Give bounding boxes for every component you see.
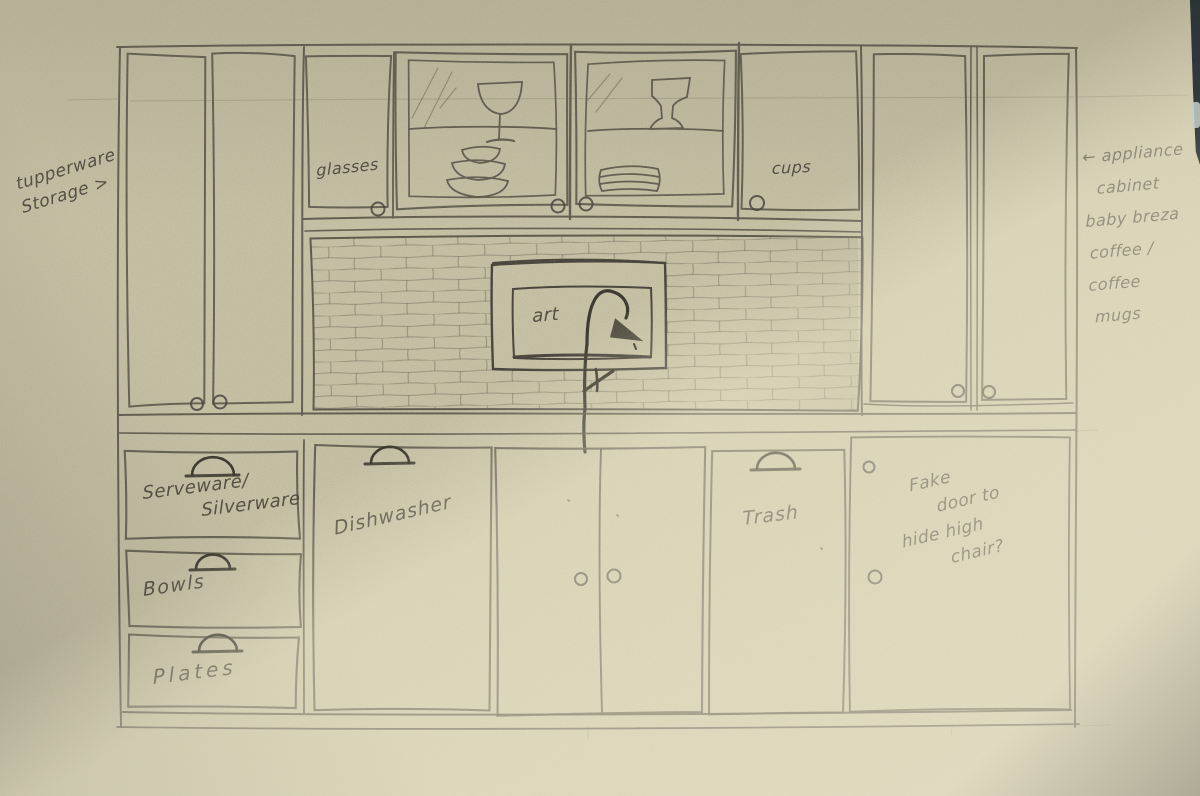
kitchen-sketch-photo: tupperware Storage > glasses cups art ← … bbox=[0, 0, 1200, 796]
note-appliance-cabinet: ← appliance cabinet baby breza coffee / … bbox=[1082, 133, 1187, 334]
label-art: art bbox=[532, 302, 559, 330]
label-cups: cups bbox=[772, 156, 812, 181]
